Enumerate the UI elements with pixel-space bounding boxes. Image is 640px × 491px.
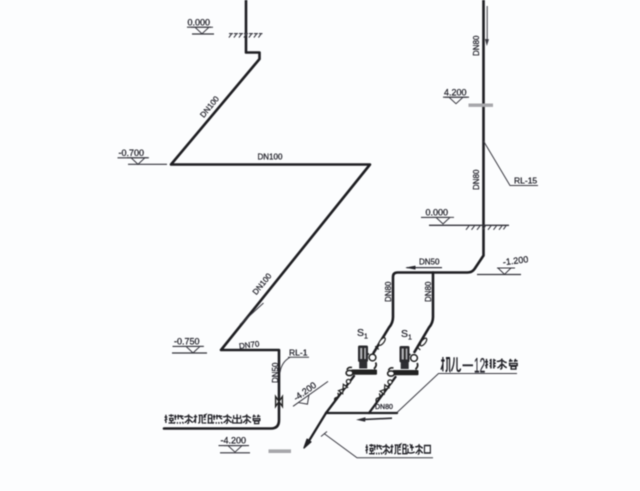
svg-text:4.200: 4.200 [444,88,467,98]
svg-text:DN50: DN50 [419,258,440,267]
svg-text:-4.200: -4.200 [221,436,247,446]
svg-text:RL-1: RL-1 [289,348,308,358]
svg-text:RL-15: RL-15 [514,176,537,186]
svg-text:S: S [401,328,408,340]
svg-text:12: 12 [474,355,485,378]
svg-text:DN100: DN100 [258,153,283,162]
svg-text:1: 1 [408,335,412,342]
svg-text:DN80: DN80 [424,281,433,302]
svg-text:DN50: DN50 [271,362,280,383]
svg-text:DN80: DN80 [472,169,481,190]
svg-text:DN80: DN80 [384,281,393,302]
svg-text:0.000: 0.000 [426,208,449,218]
svg-text:-1.200: -1.200 [502,254,529,267]
svg-text:DN80: DN80 [375,404,393,411]
svg-text:DN80: DN80 [472,35,481,56]
svg-text:-0.750: -0.750 [174,337,200,347]
svg-text:S: S [357,327,364,339]
svg-text:-0.700: -0.700 [119,148,145,158]
svg-text:DN100: DN100 [251,271,274,296]
svg-text:1: 1 [364,334,368,341]
svg-text:0.000: 0.000 [188,18,211,28]
